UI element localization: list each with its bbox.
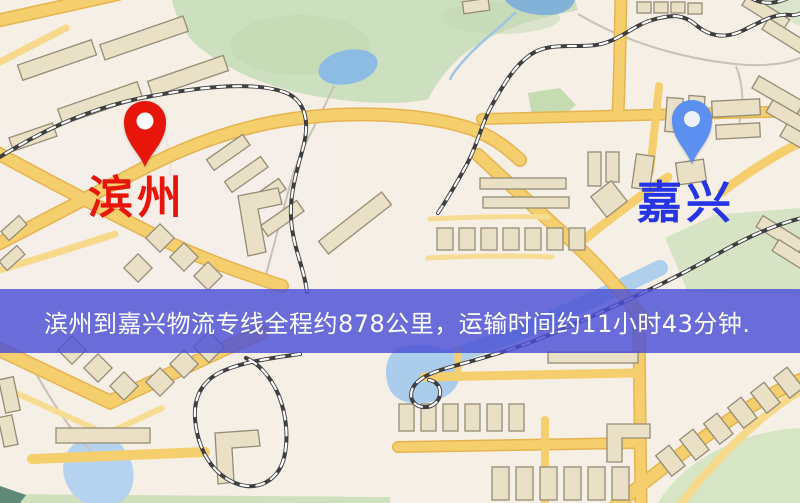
destination-city-label: 嘉兴 <box>637 180 735 225</box>
red-marker-hole <box>137 113 154 130</box>
red-marker-body <box>124 101 166 167</box>
route-info-banner: 滨州到嘉兴物流专线全程约878公里，运输时间约11小时43分钟. <box>0 289 800 353</box>
route-info-text: 滨州到嘉兴物流专线全程约878公里，运输时间约11小时43分钟. <box>0 304 751 339</box>
map-canvas <box>0 0 800 503</box>
blue-marker-icon <box>664 96 720 168</box>
origin-city-label: 滨州 <box>88 175 186 220</box>
origin-pin[interactable] <box>115 97 175 171</box>
map-screenshot: 滨州 嘉兴 滨州到嘉兴物流专线全程约878公里，运输时间约11小时43分钟. <box>0 0 800 503</box>
blue-marker-body <box>672 100 712 164</box>
destination-pin[interactable] <box>664 96 720 168</box>
blue-marker-hole <box>684 111 700 127</box>
red-marker-icon <box>115 97 175 171</box>
